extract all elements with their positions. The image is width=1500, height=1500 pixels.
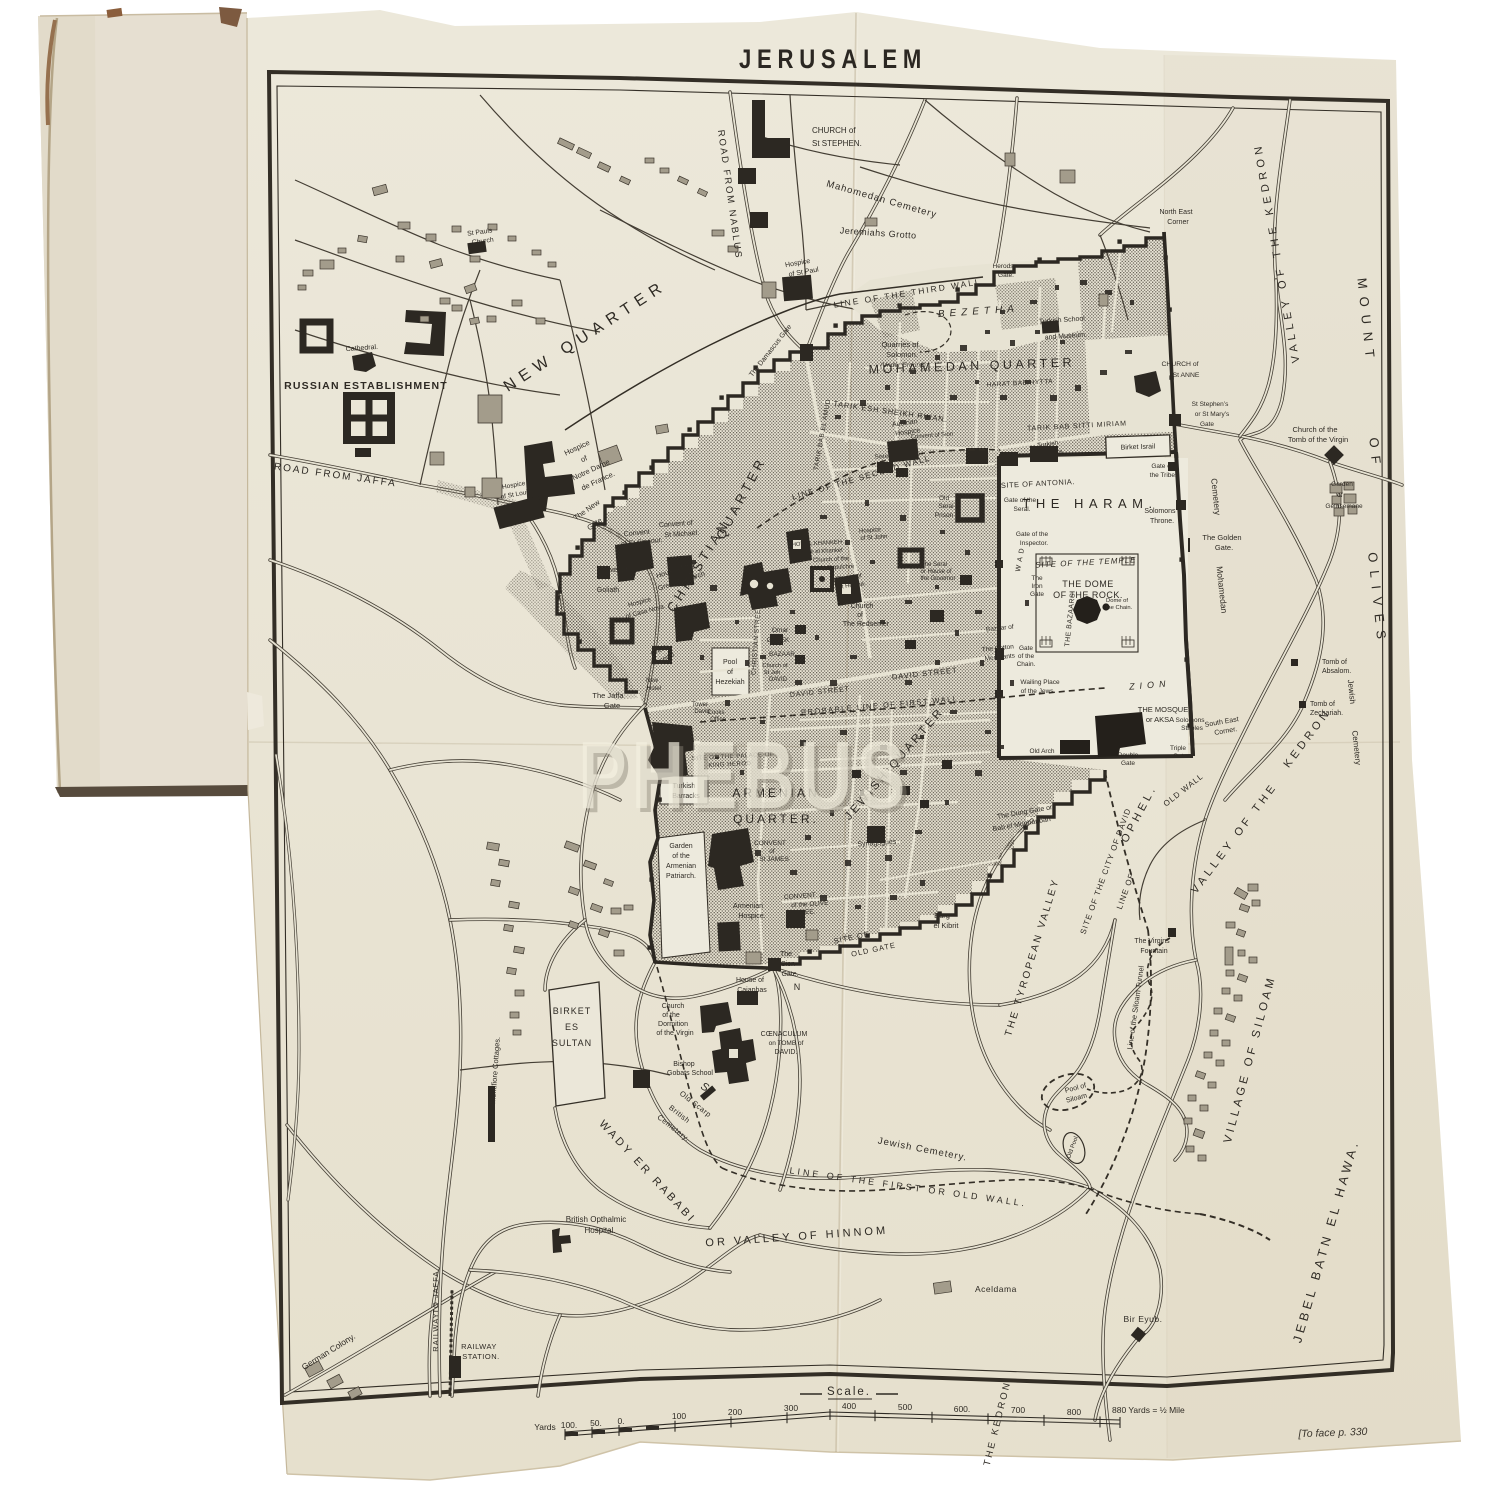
svg-text:the Governor: the Governor [920,576,955,582]
svg-text:Gate: Gate [1173,753,1187,760]
svg-text:CONVENT: CONVENT [754,840,786,847]
svg-text:The Redsemer: The Redsemer [843,621,890,628]
svg-text:Herods: Herods [993,263,1015,270]
svg-text:Goliath: Goliath [597,587,619,594]
svg-text:CHURCH of: CHURCH of [1161,361,1198,368]
svg-text:Wailing Place: Wailing Place [1020,679,1060,686]
svg-text:The: The [1031,575,1043,582]
svg-text:Seral.: Seral. [1014,506,1031,513]
svg-text:Tower of: Tower of [601,567,628,574]
svg-text:880 Yards = ½ Mile: 880 Yards = ½ Mile [1112,1405,1185,1415]
svg-text:700: 700 [1011,1405,1025,1415]
svg-text:STATION.: STATION. [462,1352,499,1361]
svg-text:Dome of: Dome of [1106,598,1128,604]
svg-text:Solomons: Solomons [1176,717,1206,724]
svg-text:Double: Double [1118,752,1139,759]
svg-text:Tomb of: Tomb of [1310,701,1335,708]
svg-text:Garden: Garden [1331,481,1353,488]
svg-text:The Jaffa: The Jaffa [592,691,624,700]
svg-text:Solomons: Solomons [1144,508,1176,515]
svg-text:CŒNACULUM: CŒNACULUM [761,1031,808,1038]
svg-text:St Joh: St Joh [764,670,780,676]
svg-text:DAVID.: DAVID. [775,1049,798,1056]
svg-text:THE DOME: THE DOME [1062,579,1114,589]
svg-text:Sion: Sion [781,961,795,968]
svg-text:House of: House of [736,977,764,984]
svg-text:Old Arch: Old Arch [1030,748,1055,755]
svg-text:Sisters: Sisters [875,453,894,460]
svg-text:THE HARAM.: THE HARAM. [1022,496,1157,511]
svg-text:Gethsemane: Gethsemane [1325,503,1363,510]
svg-text:Prison: Prison [935,512,954,519]
svg-text:Quarries of: Quarries of [881,340,919,349]
svg-text:on TOMB of: on TOMB of [769,1040,804,1047]
svg-text:RUSSIAN ESTABLISHMENT: RUSSIAN ESTABLISHMENT [284,380,448,392]
svg-text:Old: Old [939,495,950,502]
svg-text:British Opthalmic: British Opthalmic [566,1215,626,1224]
svg-text:0.: 0. [617,1416,624,1426]
svg-text:PHEBUS: PHEBUS [578,722,910,829]
svg-text:Church of: Church of [762,663,788,669]
svg-text:Caiaphas: Caiaphas [737,987,767,994]
svg-text:50.: 50. [590,1418,602,1428]
svg-text:Burg: Burg [934,911,950,920]
svg-text:200: 200 [728,1407,742,1417]
svg-text:of: of [727,669,733,676]
svg-text:Inspector.: Inspector. [1020,540,1048,547]
svg-text:300: 300 [784,1403,798,1413]
svg-text:Gate: Gate [1121,760,1135,767]
svg-text:Gate of the: Gate of the [1016,531,1049,538]
svg-text:Gate.: Gate. [998,272,1014,279]
svg-text:DAVID: DAVID [769,677,788,683]
svg-text:800: 800 [1067,1407,1081,1417]
svg-text:(Under Ground): (Under Ground) [880,362,926,369]
svg-text:The Golden: The Golden [1202,533,1241,542]
svg-text:JERUSALEM: JERUSALEM [739,44,927,74]
svg-text:St JAMES: St JAMES [759,856,789,863]
svg-text:Dormition: Dormition [658,1021,688,1028]
svg-text:Church of the: Church of the [1292,425,1337,434]
svg-text:RAILWAY: RAILWAY [431,1312,440,1351]
svg-text:Omar: Omar [772,627,789,634]
svg-text:100.: 100. [561,1420,578,1430]
svg-text:Yards: Yards [534,1422,556,1432]
svg-text:Pool: Pool [723,659,737,666]
svg-text:500: 500 [898,1402,912,1412]
svg-text:Triple: Triple [1170,745,1186,752]
svg-text:Gate.: Gate. [1215,543,1233,552]
svg-text:the Tribes: the Tribes [1150,472,1179,479]
svg-text:Throne.: Throne. [1150,518,1174,525]
svg-text:BIRKET: BIRKET [553,1006,592,1016]
svg-text:of: of [769,848,775,855]
svg-text:Gate of the: Gate of the [1004,497,1037,504]
svg-text:ES: ES [565,1022,579,1032]
svg-text:400: 400 [842,1401,856,1411]
svg-text:Gate of: Gate of [1151,463,1173,470]
svg-text:of the Virgin: of the Virgin [656,1030,693,1037]
svg-text:Serai: Serai [938,503,953,510]
svg-text:New: New [646,678,659,684]
svg-text:100: 100 [672,1411,686,1421]
svg-text:of the: of the [1018,653,1035,660]
svg-text:CHURCH of: CHURCH of [812,126,856,135]
svg-text:The: The [780,951,792,958]
svg-text:Hotel: Hotel [647,686,661,692]
svg-text:Cooks: Cooks [707,710,724,716]
svg-text:St STEPHEN.: St STEPHEN. [812,139,862,148]
svg-text:BAZAAR: BAZAAR [769,651,795,658]
svg-text:600.: 600. [954,1404,971,1414]
svg-text:el Kibrit: el Kibrit [933,921,959,930]
svg-text:RAILWAY: RAILWAY [461,1342,497,1351]
svg-text:or House of: or House of [920,569,951,575]
svg-text:or AKSA: or AKSA [1146,715,1174,724]
svg-text:N: N [794,982,801,992]
svg-text:Iron: Iron [1031,583,1043,590]
svg-text:St Stephen’s: St Stephen’s [1192,401,1229,408]
svg-text:Corner: Corner [1167,219,1189,226]
svg-text:of the: of the [672,853,690,860]
svg-text:Stables: Stables [1181,725,1203,732]
svg-text:Hospital.: Hospital. [584,1226,615,1235]
svg-text:Gobats School: Gobats School [667,1070,713,1077]
svg-text:the Chain.: the Chain. [1106,605,1133,611]
svg-text:Gate.: Gate. [781,971,798,978]
svg-text:Bishop: Bishop [673,1061,695,1068]
svg-text:St ANNE: St ANNE [1173,372,1200,379]
svg-text:Armenian: Armenian [733,903,763,910]
svg-text:Patriarch.: Patriarch. [666,873,696,880]
svg-text:Armenian: Armenian [666,863,696,870]
svg-text:Gate: Gate [1200,421,1214,428]
svg-text:Gate: Gate [604,701,620,710]
svg-text:Fountain: Fountain [1140,948,1167,955]
svg-text:TREE.: TREE. [796,908,816,916]
svg-text:THE MOSQUE: THE MOSQUE [1138,705,1188,714]
svg-text:TO JAFFA: TO JAFFA [431,1271,440,1314]
svg-text:Birket Israil: Birket Israil [1121,443,1156,451]
svg-text:Zechariah.: Zechariah. [1310,710,1343,717]
svg-text:Tomb of: Tomb of [1322,659,1347,666]
svg-text:Garden: Garden [669,843,692,850]
svg-text:The Seral: The Seral [921,562,947,568]
svg-text:Gate: Gate [1019,645,1033,652]
svg-text:Solomon.: Solomon. [886,350,918,359]
svg-text:Chain.: Chain. [1017,661,1036,668]
svg-text:Church: Church [851,603,874,610]
svg-text:[To face p. 330: [To face p. 330 [1297,1426,1368,1440]
svg-text:Tomb of the Virgin: Tomb of the Virgin [1288,435,1348,444]
svg-text:Aceldama: Aceldama [975,1284,1017,1294]
svg-text:SULTAN: SULTAN [552,1038,592,1048]
svg-text:Hezekiah: Hezekiah [715,679,744,686]
svg-text:The Virgins: The Virgins [1134,938,1170,945]
svg-text:of: of [1337,492,1343,499]
svg-text:of the Jews.: of the Jews. [1021,688,1056,695]
svg-text:North East: North East [1159,209,1192,216]
svg-text:GREEK: GREEK [767,637,790,644]
svg-text:Bir Eyub.: Bir Eyub. [1124,1314,1163,1324]
svg-text:or St Mary’s: or St Mary’s [1195,411,1230,418]
svg-text:Tower: Tower [692,702,708,708]
svg-text:Absalom.: Absalom. [1322,668,1351,675]
svg-text:of the: of the [662,1012,680,1019]
svg-text:Hospice.: Hospice. [738,913,765,920]
svg-text:Church: Church [662,1003,685,1010]
svg-text:of: of [857,612,863,619]
svg-text:Scale.: Scale. [827,1386,871,1398]
svg-text:Gate: Gate [1030,591,1044,598]
